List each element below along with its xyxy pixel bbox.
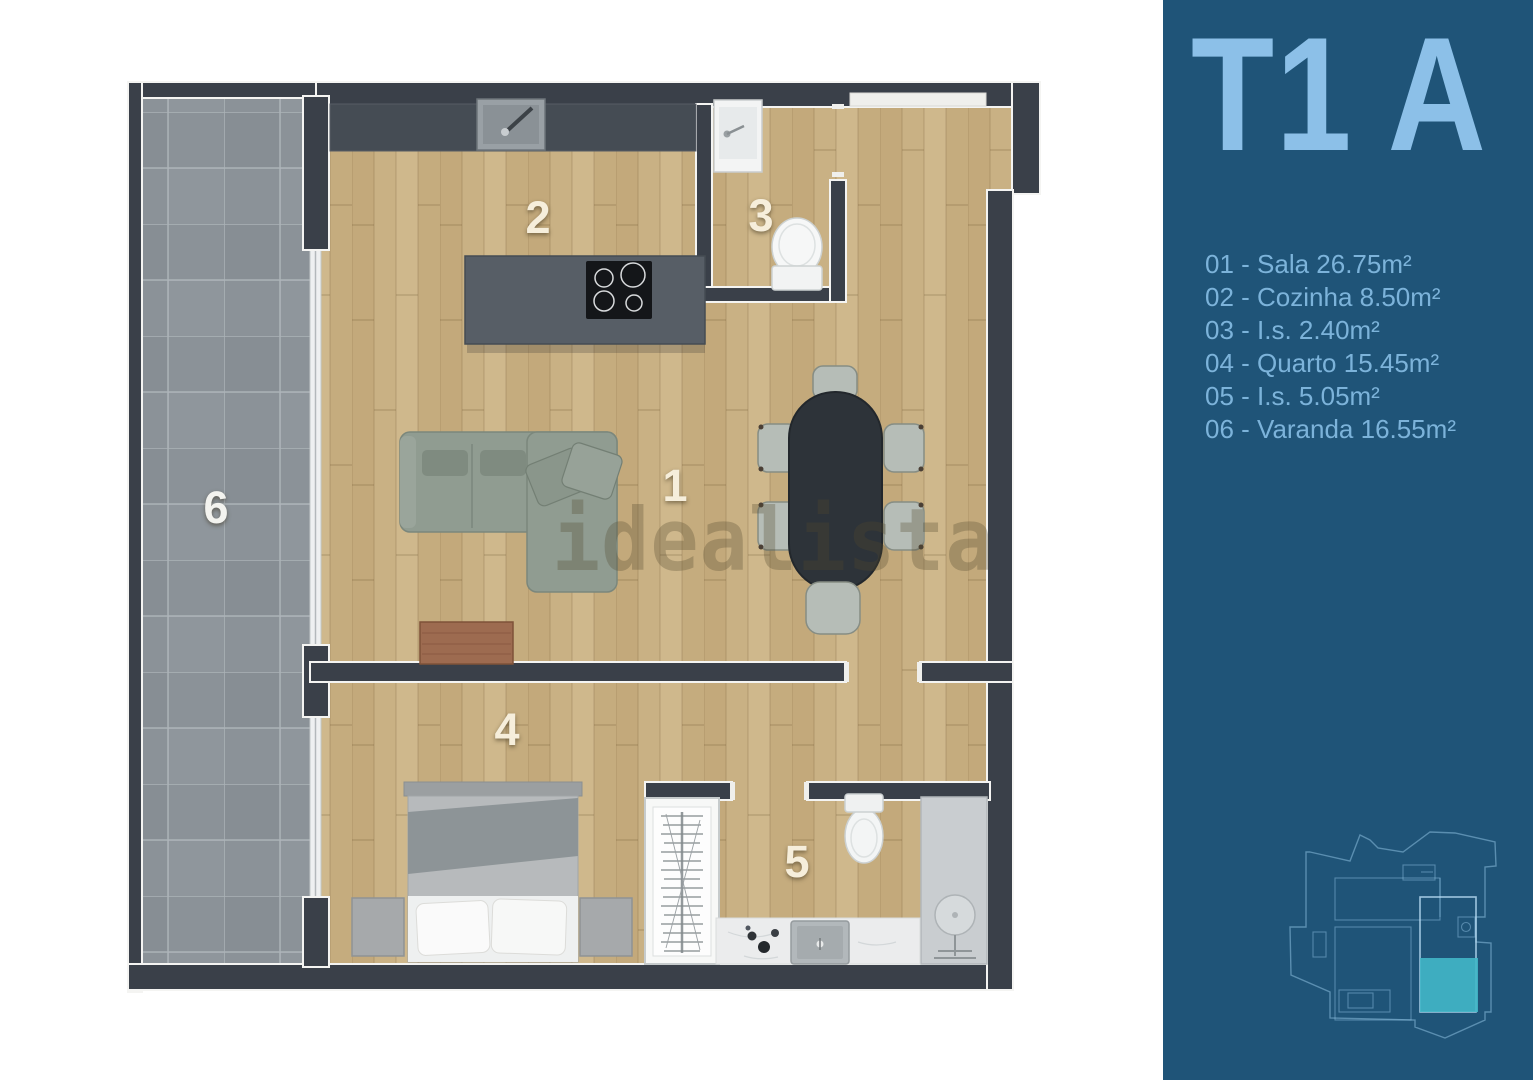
balcony-glazing — [310, 250, 321, 897]
dining-table — [789, 392, 882, 590]
kitchen-island — [465, 256, 705, 353]
bathroom3-sink — [714, 100, 762, 172]
legend-item-is: 03 - I.s. 2.40m² — [1205, 314, 1456, 347]
bed — [404, 782, 582, 962]
legend-item-quarto: 04 - Quarto 15.45m² — [1205, 347, 1456, 380]
legend-item-varanda: 06 - Varanda 16.55m² — [1205, 413, 1456, 446]
unit-title: T1 A — [1191, 14, 1488, 176]
cooktop — [586, 261, 652, 319]
room-legend: 01 - Sala 26.75m² 02 - Cozinha 8.50m² 03… — [1205, 248, 1456, 446]
wardrobe — [645, 798, 719, 964]
coffee-table — [420, 622, 513, 664]
floor-plan: 1 2 3 4 5 6 idealista — [0, 0, 1163, 1080]
floor-plan-rendering — [0, 0, 1163, 1080]
legend-item-sala: 01 - Sala 26.75m² — [1205, 248, 1456, 281]
sidebar: T1 A 01 - Sala 26.75m² 02 - Cozinha 8.50… — [1163, 0, 1533, 1080]
entrance-door — [850, 93, 986, 106]
bathroom3-toilet — [772, 218, 822, 290]
kitchen-counter — [330, 99, 696, 151]
page: 1 2 3 4 5 6 idealista T1 A 01 - Sala 26.… — [0, 0, 1533, 1080]
balcony-floor — [142, 96, 314, 964]
legend-item-cozinha: 02 - Cozinha 8.50m² — [1205, 281, 1456, 314]
building-key-plan — [1281, 818, 1531, 1063]
unit-highlight — [1420, 958, 1478, 1012]
legend-item-is2: 05 - I.s. 5.05m² — [1205, 380, 1456, 413]
